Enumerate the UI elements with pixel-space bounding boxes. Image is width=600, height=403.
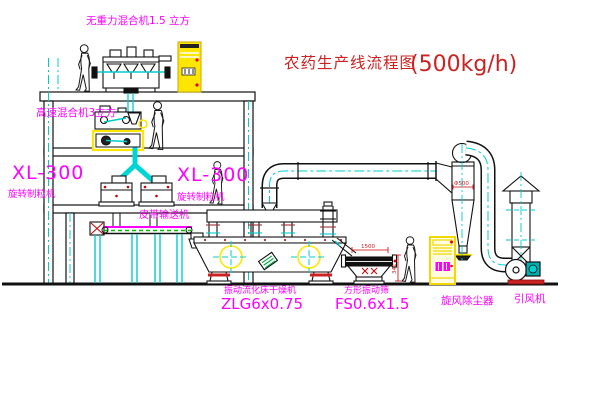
belt-conveyor — [90, 222, 192, 283]
dim-cyclone-diameter: Φ500 — [454, 181, 469, 187]
label-induced-fan: 引风机 — [514, 292, 546, 305]
fluid-bed-dryer — [189, 202, 356, 284]
induced-draft-fan — [506, 260, 545, 285]
floor-slab-top — [40, 92, 255, 101]
dim-sieve-height: 341 — [392, 264, 398, 275]
label-granulator-left-model: XL-300 — [12, 162, 84, 184]
exhaust-duct — [260, 162, 440, 210]
label-fluid-bed-dryer-model: ZLG6x0.75 — [221, 295, 303, 313]
rotary-granulator-left — [99, 176, 134, 206]
control-cabinet-top — [178, 42, 201, 92]
process-flow-diagram: 农药生产线流程图 (500kg/h) 无重力混合机1.5 立方 高速混合机3立方… — [0, 0, 600, 403]
label-granulator-center-model: XL-300 — [177, 164, 249, 186]
label-high-speed-mixer: 高速混合机3立方 — [36, 106, 116, 119]
label-granulator-center-name: 旋转制粒机 — [177, 191, 225, 203]
floor-slab-mid — [44, 148, 253, 156]
dryer-hood — [207, 210, 337, 222]
cad-drawing-canvas: 农药生产线流程图 (500kg/h) 无重力混合机1.5 立方 高速混合机3立方… — [0, 0, 600, 403]
label-gravity-mixer: 无重力混合机1.5 立方 — [86, 14, 190, 27]
drawing-title-capacity: (500kg/h) — [410, 52, 517, 77]
indicator-light-icon — [450, 265, 453, 268]
worker-figure-ground — [402, 237, 416, 283]
dim-sieve-length: 1500 — [361, 244, 375, 250]
label-cyclone: 旋风除尘器 — [441, 294, 494, 307]
dryer-support-left — [207, 272, 231, 284]
indicator-light-icon — [450, 241, 453, 244]
control-cabinet-right — [430, 237, 455, 284]
indicator-light-icon — [195, 83, 198, 86]
worker-figure-top-floor — [76, 45, 90, 92]
label-granulator-left-name: 旋转制粒机 — [8, 188, 56, 200]
worker-figure-mid-floor — [149, 102, 164, 150]
dryer-discharge-stack — [320, 202, 336, 237]
rotary-granulator-right — [139, 176, 174, 206]
label-square-sieve-model: FS0.6x1.5 — [335, 295, 409, 313]
indicator-light-icon — [195, 58, 198, 61]
fan-base — [508, 280, 544, 284]
conveyor-legs — [95, 234, 182, 283]
drawing-title: 农药生产线流程图 — [284, 54, 416, 72]
dryer-support-right — [309, 272, 333, 284]
dryer-flange — [194, 237, 346, 243]
label-belt-conveyor: 皮带输送机 — [139, 208, 189, 221]
